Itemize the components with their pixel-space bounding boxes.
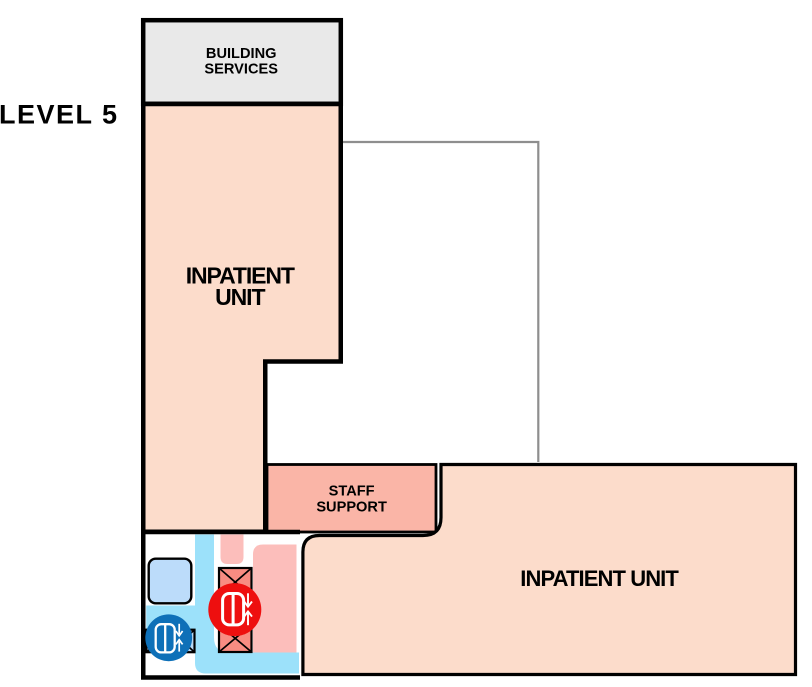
svg-text:BUILDING: BUILDING	[206, 46, 277, 62]
svg-text:INPATIENT UNIT: INPATIENT UNIT	[520, 566, 679, 591]
svg-text:STAFF: STAFF	[329, 484, 375, 500]
svg-text:SUPPORT: SUPPORT	[316, 500, 387, 516]
svg-text:LEVEL 5: LEVEL 5	[0, 99, 119, 129]
svg-text:SERVICES: SERVICES	[204, 62, 278, 78]
svg-text:UNIT: UNIT	[215, 284, 265, 310]
